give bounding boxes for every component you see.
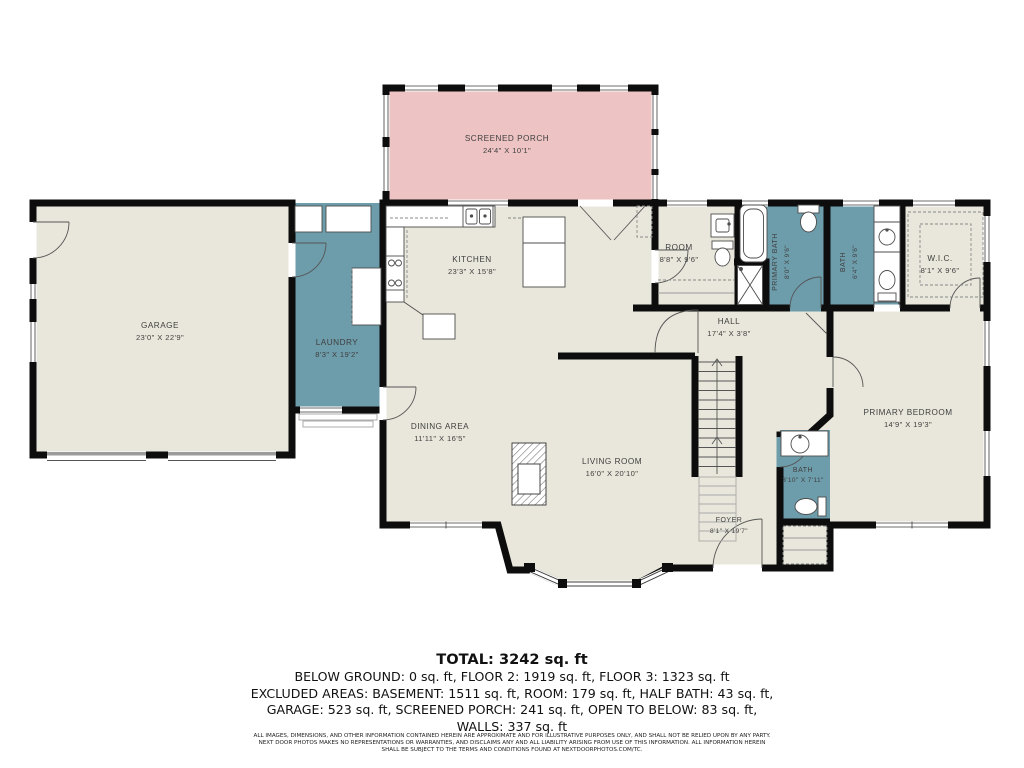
wic-dims: 8'1" X 9'6" — [921, 266, 960, 275]
kitchen-window — [448, 200, 508, 207]
wic-label: W.I.C. — [927, 254, 952, 263]
screened-porch-dims: 24'4" X 10'1" — [483, 146, 531, 155]
dining-window — [410, 522, 482, 529]
primary-bath-label: PRIMARY BATH — [772, 233, 779, 291]
porch-window — [405, 85, 438, 92]
kitchen-stove — [386, 256, 404, 290]
shower — [738, 266, 763, 305]
summary-line: GARAGE: 523 sq. ft, SCREENED PORCH: 241 … — [0, 702, 1024, 719]
kitchen-sink — [463, 206, 493, 227]
bedroom-window — [876, 522, 948, 529]
dining-area-label: DINING AREA — [411, 422, 469, 431]
right-window — [984, 216, 991, 262]
primary-bedroom-label: PRIMARY BEDROOM — [863, 408, 952, 417]
disclaimer-line: SHALL BE SUBJECT TO THE TERMS AND CONDIT… — [0, 747, 1024, 754]
bath-upper-dims: 6'4" X 9'6" — [852, 245, 859, 279]
porch-window — [383, 95, 390, 137]
porch-window — [652, 135, 659, 169]
room-label: ROOM — [665, 243, 692, 252]
kitchen-dims: 23'3" X 15'8" — [448, 267, 496, 276]
fireplace — [512, 443, 546, 505]
laundry-label: LAUNDRY — [316, 338, 359, 347]
kitchen-label: KITCHEN — [452, 255, 491, 264]
bathtub — [740, 205, 767, 262]
lower-bath-vanity — [781, 431, 828, 456]
room-dims: 8'8" X 9'6" — [660, 255, 699, 264]
hall-dims: 17'4" X 3'8" — [707, 329, 751, 338]
porch-window — [465, 85, 498, 92]
kitchen-fridge — [523, 217, 565, 287]
primary-bedroom-dims: 14'9" X 19'3" — [884, 420, 932, 429]
foyer-dims: 8'1" X 19'7" — [710, 528, 748, 535]
wic-window — [913, 200, 955, 207]
disclaimer: ALL IMAGES, DIMENSIONS, AND OTHER INFORM… — [0, 733, 1024, 754]
bath-lower-dims: 3'10" X 7'11" — [782, 477, 824, 484]
porch-window — [652, 175, 659, 199]
dining-area-dims: 11'11" X 16'5" — [414, 434, 466, 443]
steps — [299, 414, 377, 427]
garage-window — [30, 322, 37, 362]
porch-window — [600, 85, 628, 92]
porch-window — [652, 95, 659, 129]
porch-window — [383, 147, 390, 191]
garage-label: GARAGE — [141, 321, 179, 330]
summary-line: EXCLUDED AREAS: BASEMENT: 1511 sq. ft, R… — [0, 686, 1024, 703]
primary-bath-dims: 8'0" X 9'6" — [784, 245, 791, 279]
right-window — [984, 431, 991, 476]
screened-porch-label: SCREENED PORCH — [465, 134, 549, 143]
living-room-label: LIVING ROOM — [582, 457, 642, 466]
porch-window — [552, 85, 577, 92]
floor-plan-page: SCREENED PORCH 24'4" X 10'1" KITCHEN 23'… — [0, 0, 1024, 768]
garage-window — [30, 284, 37, 299]
living-room-dims: 16'0" X 20'10" — [586, 469, 639, 478]
foyer-label: FOYER — [716, 517, 743, 524]
room-window — [667, 200, 707, 207]
right-window — [984, 321, 991, 366]
hall-label: HALL — [718, 317, 740, 326]
floor-plan-drawing: SCREENED PORCH 24'4" X 10'1" KITCHEN 23'… — [0, 0, 1024, 630]
disclaimer-line: ALL IMAGES, DIMENSIONS, AND OTHER INFORM… — [0, 733, 1024, 740]
area-summary: TOTAL: 3242 sq. ft BELOW GROUND: 0 sq. f… — [0, 650, 1024, 735]
laundry-window — [300, 407, 342, 414]
garage-door — [47, 452, 146, 461]
bath-window — [843, 200, 879, 207]
lower-bath-toilet — [795, 497, 826, 516]
disclaimer-line: NEXT DOOR PHOTOS MAKES NO REPRESENTATION… — [0, 740, 1024, 747]
total-area: TOTAL: 3242 sq. ft — [0, 650, 1024, 669]
bath-lower-label: BATH — [793, 467, 813, 474]
bath-upper-label: BATH — [840, 252, 847, 272]
laundry-dims: 8'3" X 19'2" — [315, 350, 359, 359]
bath-vanity — [874, 206, 900, 302]
summary-line: BELOW GROUND: 0 sq. ft, FLOOR 2: 1919 sq… — [0, 669, 1024, 686]
garage-dims: 23'0" X 22'9" — [136, 333, 184, 342]
half-bath-vanity — [711, 214, 734, 237]
garage-door — [168, 452, 276, 461]
